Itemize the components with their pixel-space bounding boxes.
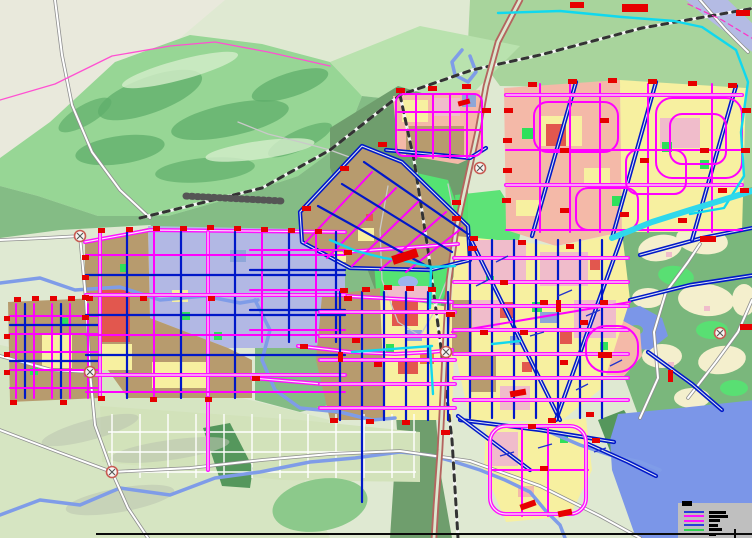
red-marker-bar [4,370,10,375]
red-marker-bar [570,2,584,8]
red-marker-bar [261,227,268,232]
red-marker-bar [140,296,147,301]
red-marker-bar [700,148,709,153]
legend-line-magenta-1-swatch [684,515,704,517]
red-marker-bar [600,300,608,305]
red-marker-bar [234,226,241,231]
red-marker-bar [500,280,508,285]
red-marker-bar [503,138,512,143]
district-f-salmon [504,80,622,246]
legend-line-green-label-bar [709,528,722,531]
red-marker-bar [4,334,10,339]
interchange-icon [441,347,452,358]
district-c-pink [432,98,460,116]
red-marker-bar [402,420,410,425]
interchange-icon [475,163,486,174]
legend-line-magenta-2-label-bar [709,519,720,522]
red-marker-bar [344,296,352,301]
red-marker-bar [98,228,105,233]
red-marker-bar [504,108,513,113]
red-marker-bar [622,4,648,12]
red-marker-bar [340,288,348,293]
red-marker-bar [366,419,374,424]
legend-line-green-swatch [684,529,704,531]
red-marker-bar [86,296,93,301]
red-marker-bar [315,229,322,234]
red-marker-bar [68,296,75,301]
red-marker-bar [518,240,526,245]
red-marker-bar [10,400,17,405]
interchange-icon [75,231,86,242]
red-marker-bar [556,300,561,312]
red-marker-bar [4,352,10,357]
red-marker-bar [592,438,600,443]
red-marker-bar [640,158,649,163]
red-marker-bar [14,297,21,302]
red-marker-bar [288,228,295,233]
red-marker-bar [568,79,577,84]
red-marker-bar [32,296,39,301]
red-marker-bar [742,108,751,113]
red-marker-bar [330,418,338,423]
map-frame-line [96,533,755,535]
planning-map-image [0,0,755,538]
red-marker-bar [441,430,450,435]
f-green [522,128,533,139]
red-marker-bar [452,216,461,221]
red-marker-bar [560,148,569,153]
red-marker-bar [150,397,157,402]
red-marker-bar [446,312,455,317]
red-marker-bar [528,424,536,429]
red-marker-bar [82,275,89,280]
red-marker-bar [126,227,133,232]
red-marker-bar [560,360,568,365]
red-marker-bar [528,82,537,87]
legend-line-blue-2-label-bar [709,524,718,527]
red-marker-bar [740,188,749,193]
red-marker-bar [452,200,461,205]
legend-line-blue-swatch [684,511,704,513]
interchange-icon [715,328,726,339]
red-marker-bar [4,316,10,321]
red-marker-bar [470,236,478,241]
red-marker-bar [580,320,588,325]
legend-line-magenta-1-label-bar [709,515,728,518]
red-marker-bar [207,225,214,230]
red-marker-bar [252,376,260,381]
legend-line-blue-label-bar [709,511,726,514]
red-marker-bar [340,166,349,171]
red-marker-bar [468,246,477,251]
red-marker-bar [82,315,89,320]
red-marker-bar [60,400,67,405]
red-marker-bar [728,83,737,88]
red-marker-bar [718,188,727,193]
red-marker-bar [98,396,105,401]
map-canvas [0,0,755,538]
red-marker-bar [502,198,511,203]
red-marker-bar [586,412,594,417]
interchange-icon [85,367,96,378]
red-marker-bar [302,206,311,211]
red-marker-bar [153,226,160,231]
red-marker-bar [648,79,657,84]
red-marker-bar [548,418,556,423]
red-marker-bar [205,397,212,402]
red-marker-bar [598,352,612,358]
red-marker-bar [428,287,436,292]
red-marker-bar [566,244,574,249]
red-marker-bar [700,236,716,242]
red-marker-bar [540,300,548,305]
legend-line-magenta-2-swatch [684,520,704,522]
red-marker-bar [560,208,569,213]
red-marker-bar [503,168,512,173]
red-marker-bar [520,330,528,335]
red-marker-bar [540,466,548,471]
red-marker-bar [180,226,187,231]
red-marker-bar [688,81,697,86]
red-marker-bar [482,108,491,113]
red-marker-bar [600,118,609,123]
red-marker-bar [428,86,437,91]
interchange-icon [107,467,118,478]
resort-pink-dot [704,306,710,311]
red-marker-bar [338,352,343,362]
red-marker-bar [378,142,387,147]
red-marker-bar [678,218,687,223]
red-marker-bar [50,296,57,301]
red-marker-bar [462,84,471,89]
map-frame-tick [734,529,736,538]
red-marker-bar [208,296,215,301]
red-marker-bar [736,10,750,16]
red-marker-bar [352,338,360,343]
red-marker-bar [374,362,382,367]
red-marker-bar [406,286,414,291]
resort-green [720,380,748,396]
legend-title-bar [682,501,692,506]
red-marker-bar [480,330,488,335]
resort-pink-dot [666,252,672,257]
red-marker-bar [608,78,617,83]
red-marker-bar [668,370,673,382]
red-marker-bar [384,285,392,290]
red-marker-bar [362,287,370,292]
red-marker-bar [620,212,629,217]
g-red [560,332,572,344]
red-marker-bar [396,88,405,93]
legend-line-blue-2-swatch [684,524,704,526]
red-marker-bar [300,344,308,349]
red-marker-bar [344,250,352,255]
red-marker-bar [82,255,89,260]
red-marker-bar [741,148,750,153]
